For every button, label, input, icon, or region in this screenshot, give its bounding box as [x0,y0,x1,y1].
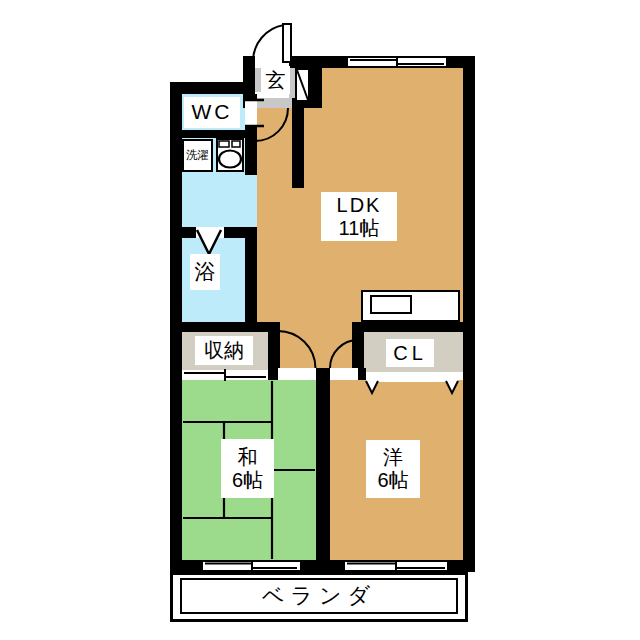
wall-wc-top [170,82,253,94]
closet-label-text: CL [393,342,427,365]
floor-plan: WC 玄 洗濯 浴 収納 LDK 11帖 CL 和 6帖 洋 6帖 ベランダ [0,0,640,640]
closet-door-threshold [366,372,458,382]
bath-label-text: 浴 [195,260,216,284]
entrance-label-text: 玄 [266,69,286,92]
wall-bottom-right [447,560,475,572]
ldk-window [348,56,446,68]
entry-door-arc [253,25,284,62]
veranda-label-text: ベランダ [262,583,376,608]
ldk-label-text: LDK [337,194,382,217]
ldk-label: LDK 11帖 [321,192,397,241]
wall-hall-stub [292,108,304,188]
western-room-label: 洋 6帖 [366,440,420,498]
western-room-size-text: 6帖 [377,469,408,492]
western-room-label-text: 洋 [383,446,403,469]
bath-label: 浴 [190,254,220,290]
wc-door-opening [245,100,257,126]
wall-partition-b [245,126,257,175]
wall-bottom-left [170,560,203,572]
japanese-room-window [203,560,300,572]
storage-label: 収納 [195,336,253,365]
shoe-cabinet [295,68,310,102]
sink-unit [216,138,244,172]
kitchen-sink [370,295,412,314]
japanese-room-size-text: 6帖 [232,469,263,492]
washroom-doorway [245,175,257,227]
japanese-room-label: 和 6帖 [221,439,274,498]
laundry-label: 洗濯 [182,148,213,164]
ldk-left-door-opening [278,368,316,380]
wall-partition-c [245,227,257,332]
ldk-size-text: 11帖 [339,217,380,240]
japanese-room-label-text: 和 [238,446,258,469]
wall-washroom-bath-left [170,227,196,238]
wall-room-divider [316,368,330,560]
entrance-label: 玄 [261,66,290,94]
wc-label-text: WC [192,100,233,124]
wc-label: WC [184,97,240,128]
laundry-label-text: 洗濯 [186,149,209,161]
wall-right [463,56,475,572]
wall-bath-storage [170,322,280,332]
wall-wc-washroom [170,130,257,138]
western-room-window [345,560,447,572]
storage-sliding-threshold [182,370,268,380]
wall-bottom-mid [300,560,345,572]
ldk-right-door-opening [330,368,358,380]
closet-label: CL [386,339,434,367]
storage-label-text: 収納 [204,339,244,362]
veranda-label: ベランダ [170,581,468,611]
wall-closet-top [352,322,463,332]
